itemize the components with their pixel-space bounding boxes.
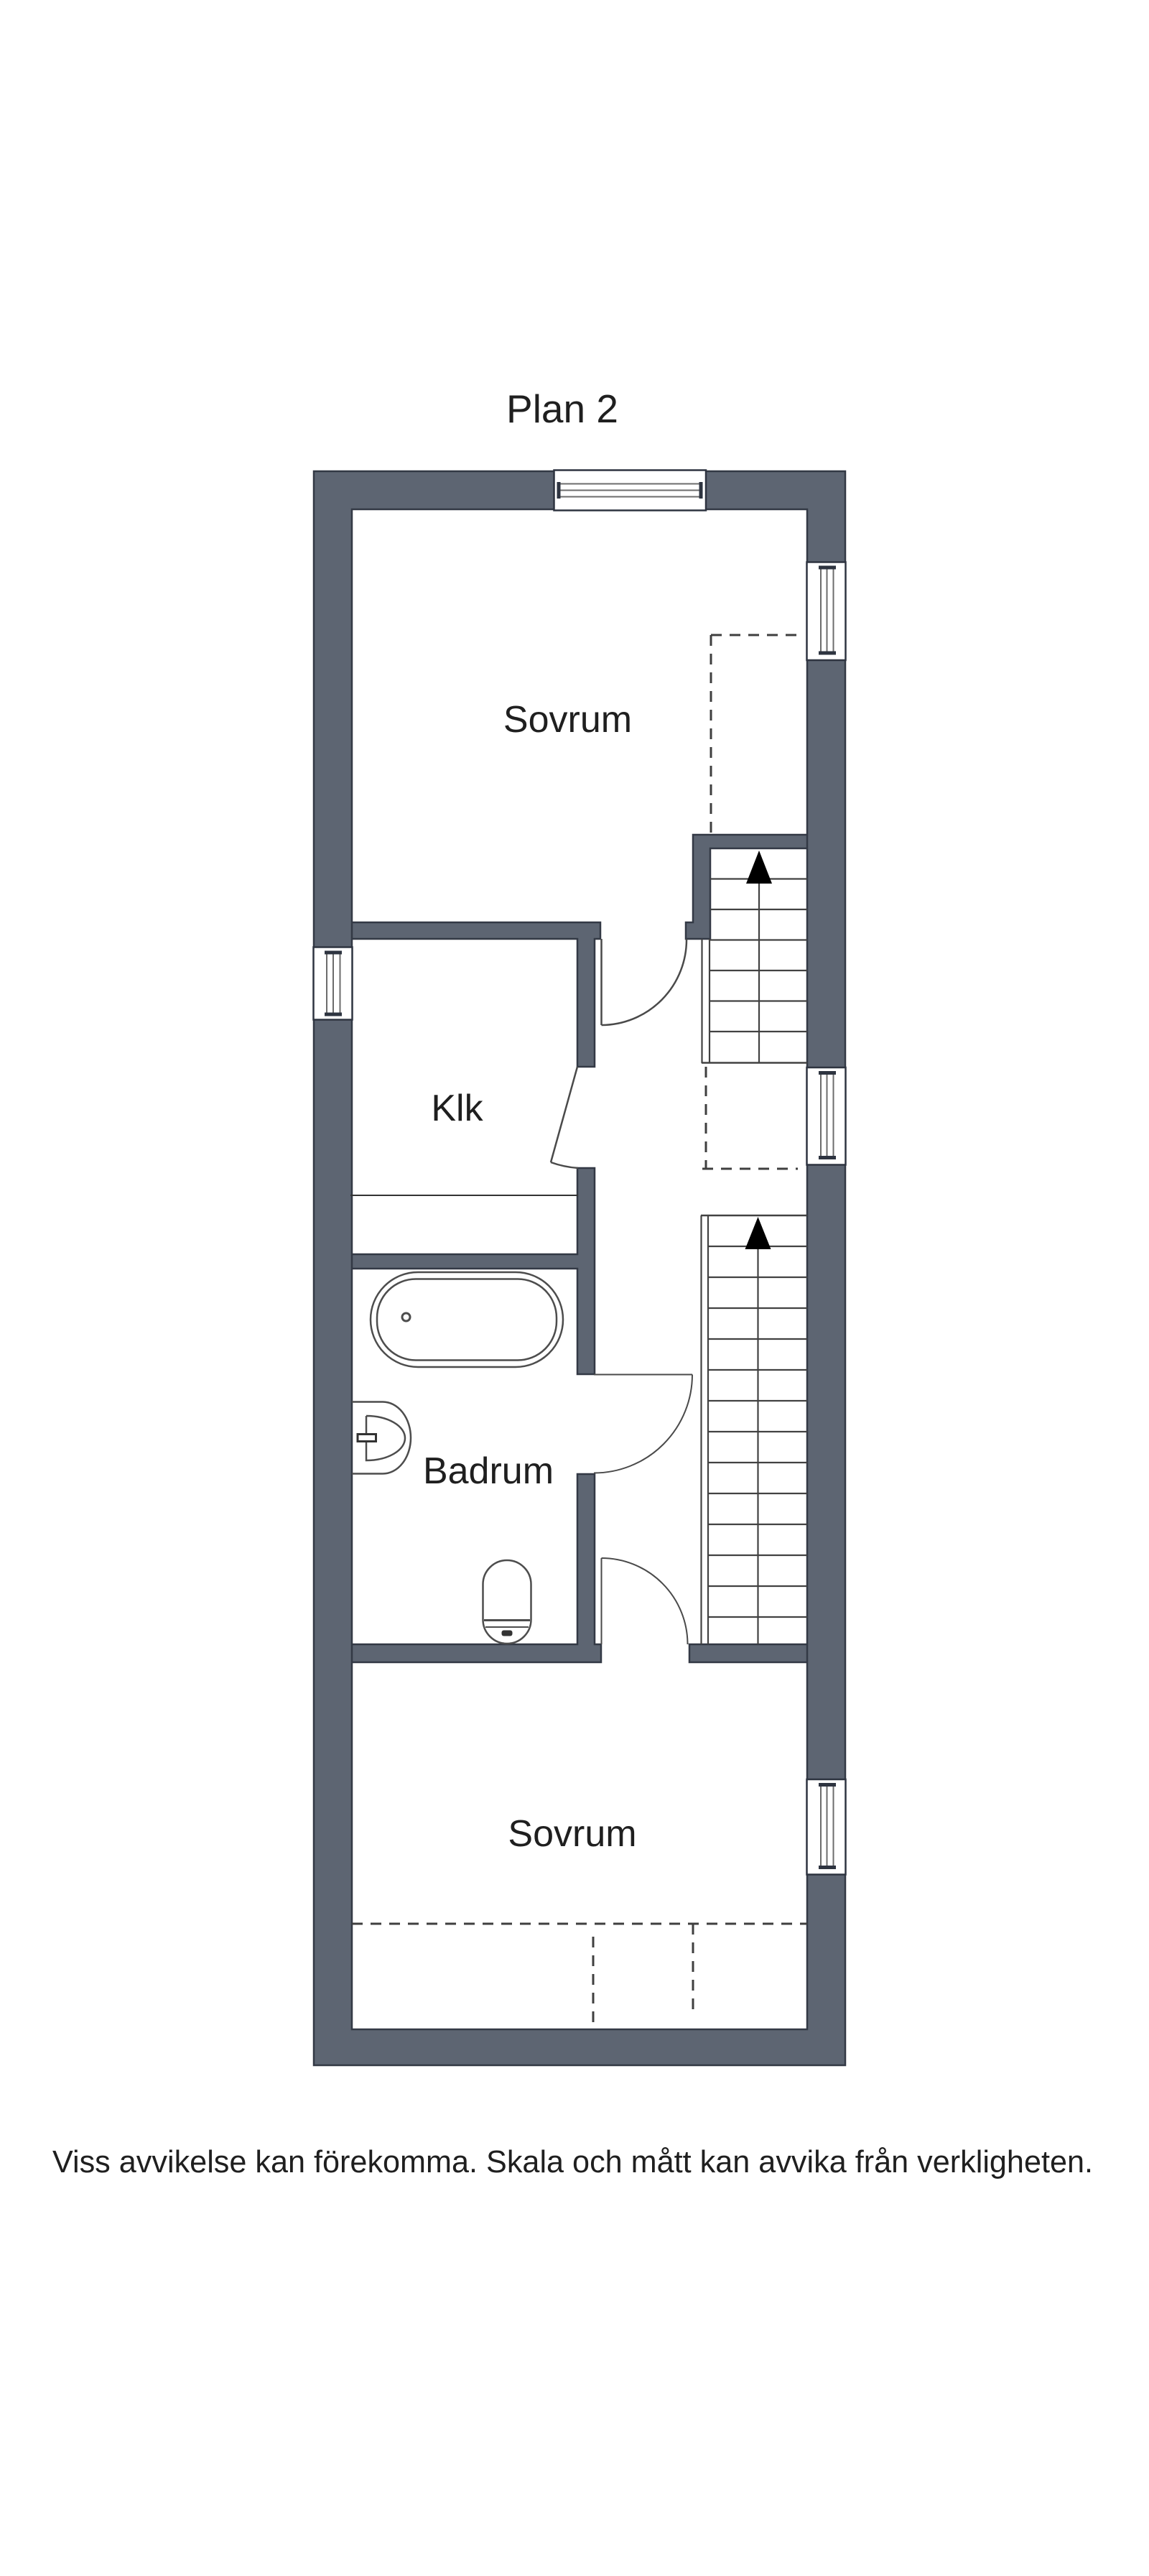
svg-text:Viss avvikelse kan förekomma.: Viss avvikelse kan förekomma. Skala och …: [52, 2145, 1093, 2179]
svg-text:Plan 2: Plan 2: [506, 386, 618, 431]
svg-text:Badrum: Badrum: [423, 1450, 554, 1492]
svg-text:Sovrum: Sovrum: [508, 1813, 636, 1855]
svg-text:Klk: Klk: [431, 1088, 483, 1129]
svg-text:Sovrum: Sovrum: [503, 699, 632, 741]
